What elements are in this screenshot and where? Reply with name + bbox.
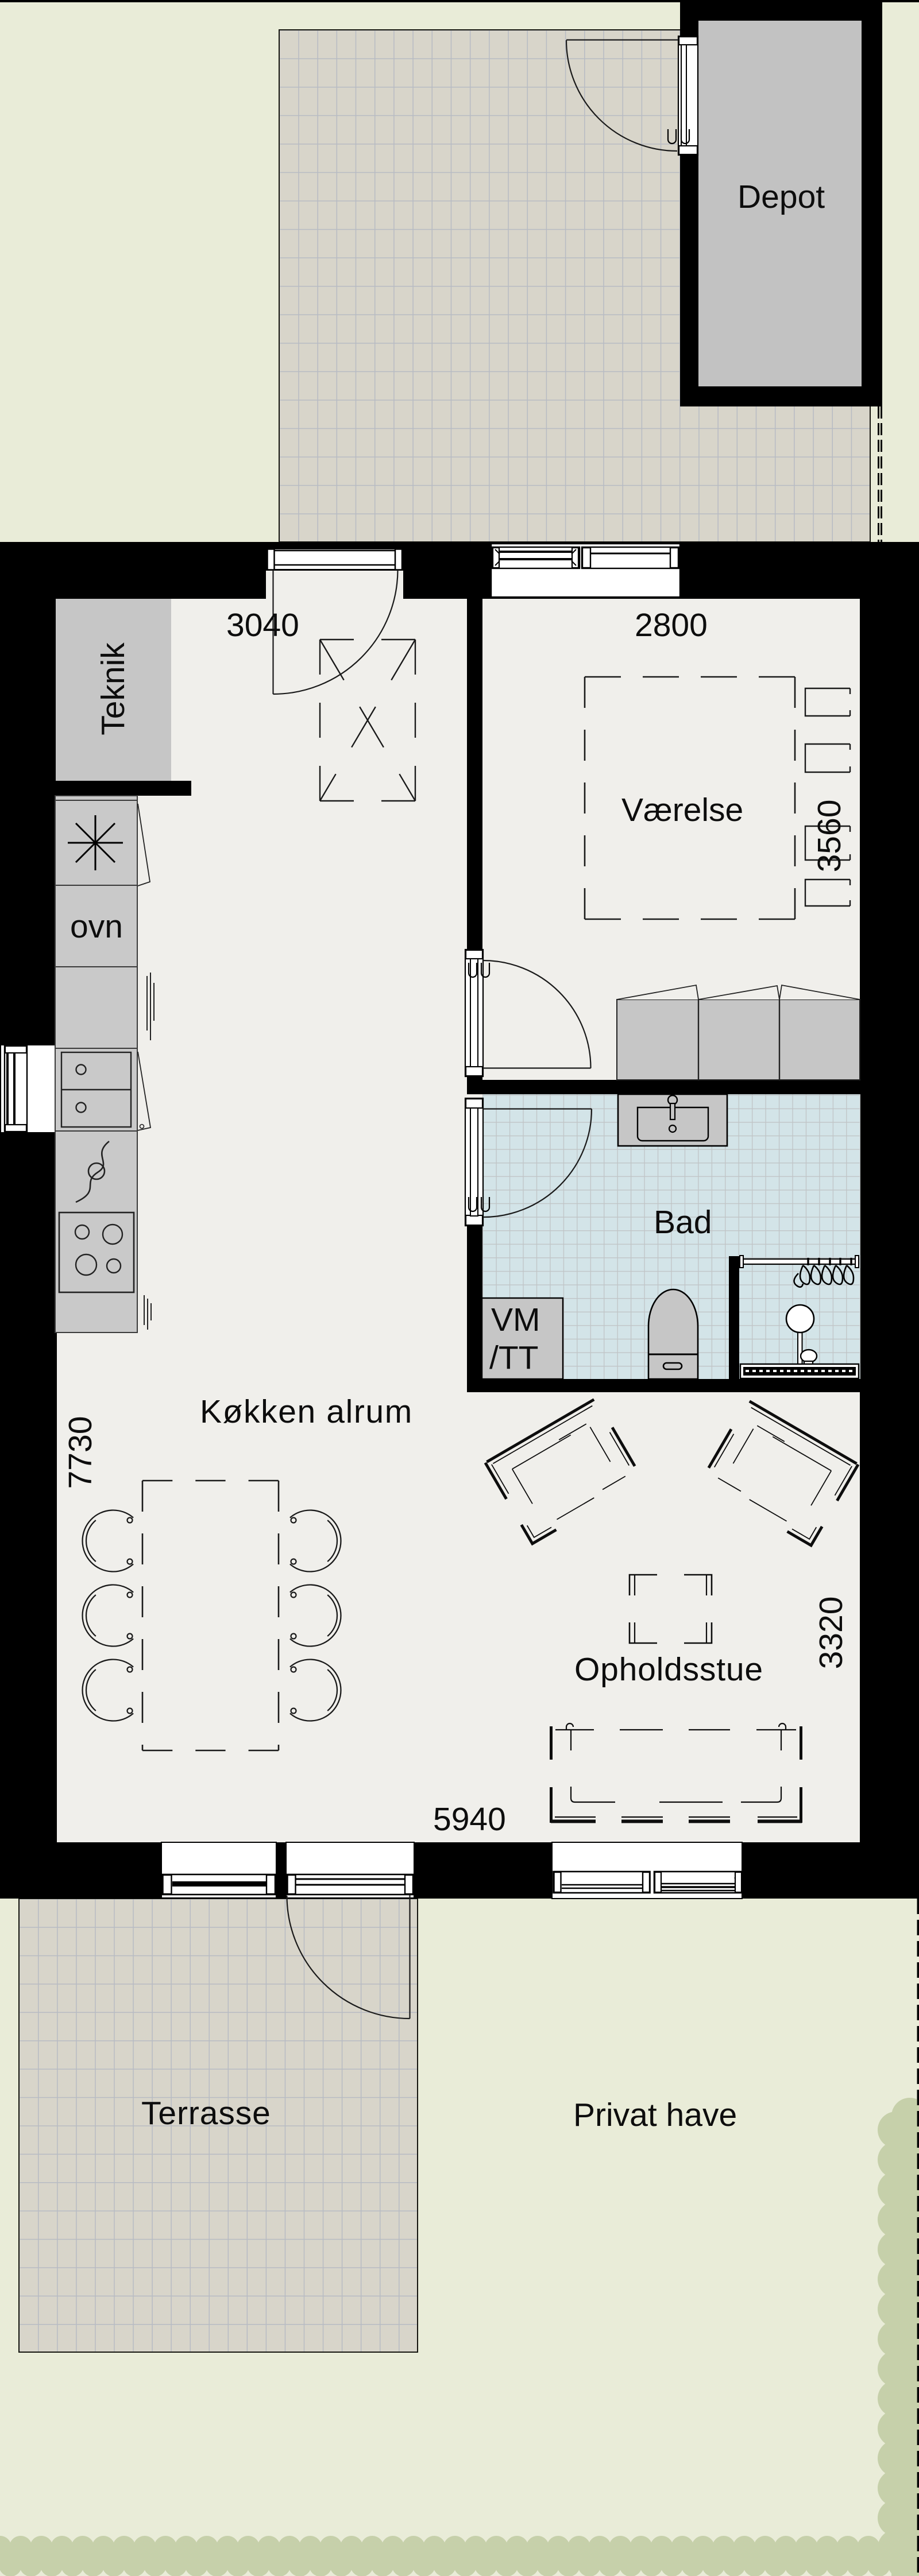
svg-text:3040: 3040 [226, 607, 299, 644]
svg-text:Køkken alrum: Køkken alrum [200, 1393, 413, 1430]
svg-text:ovn: ovn [70, 908, 123, 945]
svg-text:Værelse: Værelse [621, 792, 743, 828]
svg-text:Depot: Depot [737, 179, 825, 215]
svg-text:VM: VM [491, 1301, 540, 1338]
svg-text:Teknik: Teknik [95, 642, 132, 735]
svg-text:5940: 5940 [433, 1801, 506, 1838]
svg-text:2800: 2800 [635, 607, 708, 644]
svg-text:/TT: /TT [489, 1339, 538, 1376]
svg-text:3320: 3320 [813, 1597, 850, 1669]
svg-text:Opholdsstue: Opholdsstue [574, 1651, 763, 1688]
svg-text:3560: 3560 [811, 800, 848, 873]
svg-text:7730: 7730 [62, 1416, 99, 1489]
svg-text:Privat have: Privat have [573, 2097, 737, 2133]
svg-text:Terrasse: Terrasse [141, 2095, 271, 2132]
svg-text:Bad: Bad [654, 1204, 712, 1241]
